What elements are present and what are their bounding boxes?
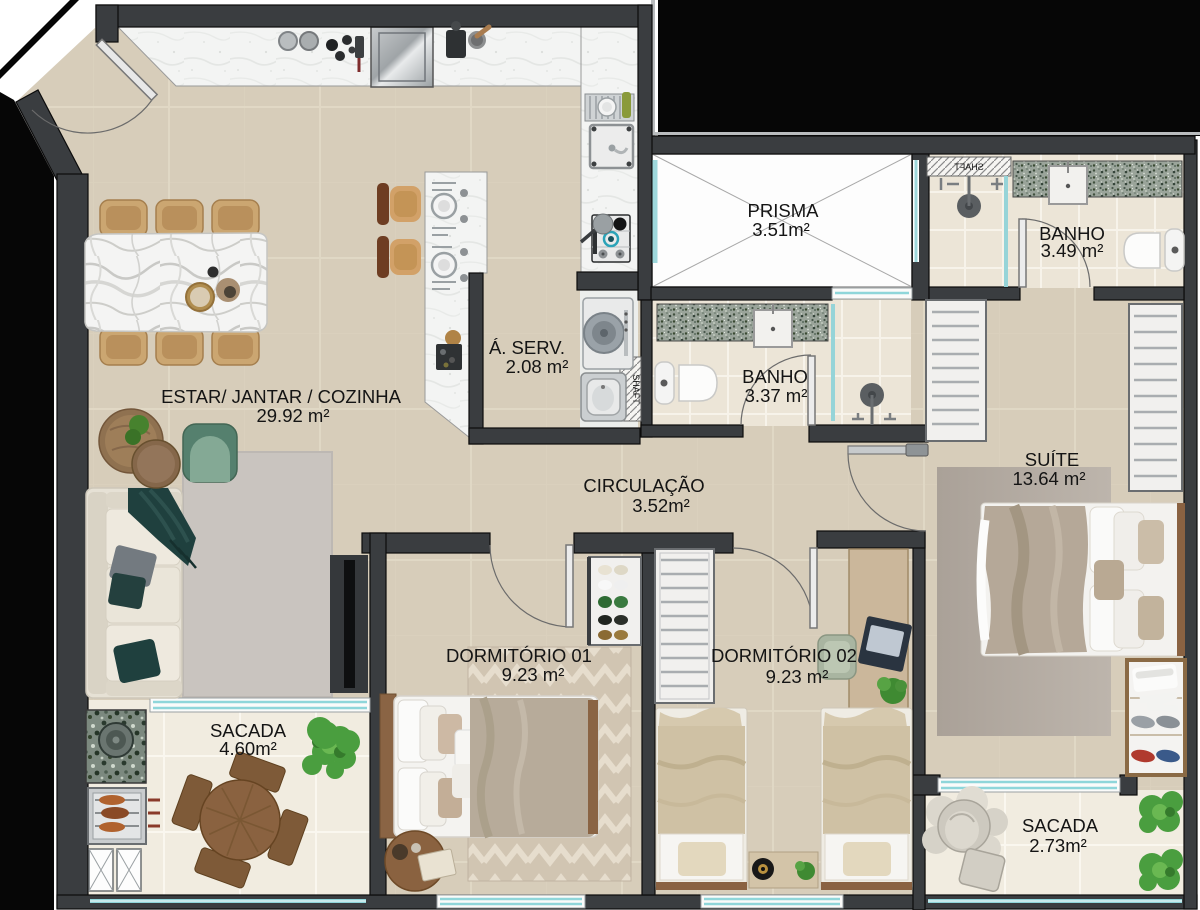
svg-text:29.92 m²: 29.92 m² <box>256 405 329 426</box>
svg-text:3.49 m²: 3.49 m² <box>1041 240 1104 261</box>
svg-text:9.23 m²: 9.23 m² <box>502 664 565 685</box>
svg-text:CIRCULAÇÃO: CIRCULAÇÃO <box>583 475 704 496</box>
svg-text:SACADA: SACADA <box>1022 815 1099 836</box>
svg-text:DORMITÓRIO 01: DORMITÓRIO 01 <box>446 645 592 666</box>
svg-text:DORMITÓRIO 02: DORMITÓRIO 02 <box>711 645 857 666</box>
svg-text:Á. SERV.: Á. SERV. <box>489 337 565 358</box>
svg-text:SUÍTE: SUÍTE <box>1025 449 1079 470</box>
svg-text:PRISMA: PRISMA <box>748 200 820 221</box>
svg-text:3.37 m²: 3.37 m² <box>745 385 808 406</box>
svg-text:3.52m²: 3.52m² <box>632 495 690 516</box>
svg-text:ESTAR/ JANTAR / COZINHA: ESTAR/ JANTAR / COZINHA <box>161 386 401 407</box>
svg-text:2.73m²: 2.73m² <box>1029 835 1087 856</box>
svg-text:BANHO: BANHO <box>742 366 808 387</box>
svg-text:SHAFT: SHAFT <box>954 162 984 172</box>
svg-text:13.64 m²: 13.64 m² <box>1012 468 1085 489</box>
svg-text:4.60m²: 4.60m² <box>219 738 277 759</box>
svg-text:9.23 m²: 9.23 m² <box>766 666 829 687</box>
svg-text:2.08 m²: 2.08 m² <box>506 356 569 377</box>
svg-text:3.51m²: 3.51m² <box>752 219 810 240</box>
svg-text:SHAFT: SHAFT <box>631 374 641 404</box>
